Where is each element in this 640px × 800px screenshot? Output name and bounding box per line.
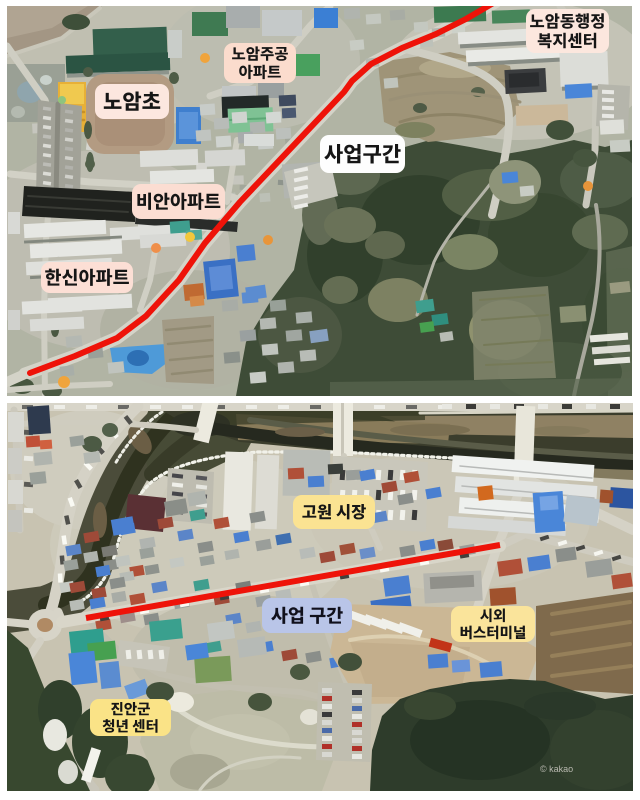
svg-text:© kakao: © kakao: [540, 764, 573, 774]
